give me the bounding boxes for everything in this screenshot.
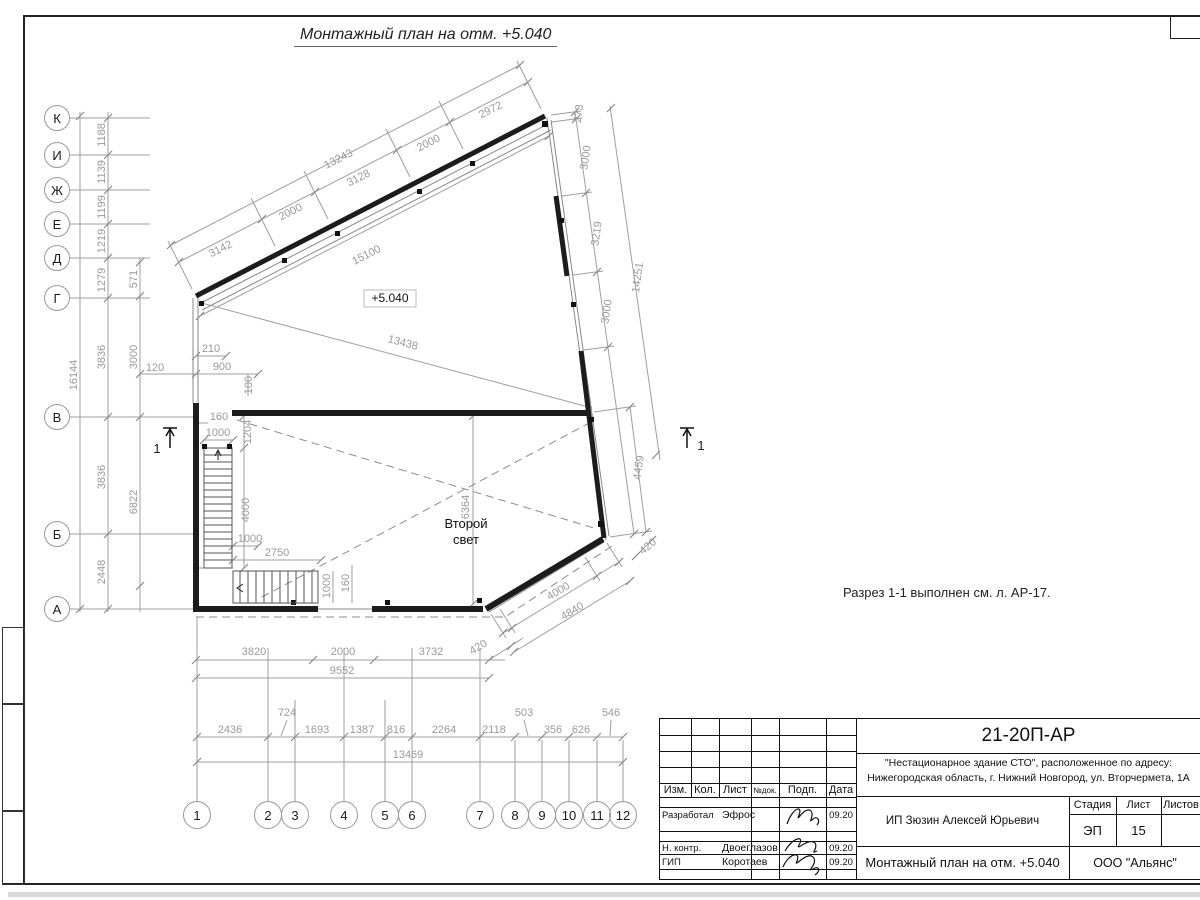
dim-label: 6364: [460, 495, 472, 519]
dim-label: 546: [602, 707, 620, 719]
row-axis-label: К: [53, 111, 61, 126]
tb-col-izm: Изм.: [660, 783, 691, 797]
dim-label: 1000: [238, 533, 262, 545]
dim-label: 3000: [578, 145, 593, 171]
dim-label: 420: [467, 638, 489, 658]
dim-label: 571: [128, 270, 140, 288]
tb-customer: ИП Зюзин Алексей Юрьевич: [856, 796, 1069, 846]
dim-label: 273: [572, 104, 586, 124]
dim-label: 3820: [242, 646, 266, 658]
tb-name-ncontrol: Двоеглазов: [722, 842, 784, 854]
tb-company: ООО "Альянс": [1069, 846, 1200, 879]
tb-sheets-label: Листов: [1161, 796, 1200, 814]
col-axis-bubbles: 1 2 3 4 5 6 7 8 9 10 11 12: [184, 802, 637, 829]
row-axis-label: Д: [53, 251, 62, 266]
dim-label: 4000: [240, 498, 252, 522]
row-axis-label: И: [52, 148, 61, 163]
dim-label: 13438: [386, 333, 419, 353]
col-axis-label: 4: [340, 808, 347, 823]
signatures: [779, 799, 826, 877]
dim-label: 120: [146, 362, 164, 374]
row-axis-label: А: [53, 602, 62, 617]
col-axis-label: 11: [590, 808, 604, 823]
dim-label: 420: [637, 536, 659, 557]
tb-line: [856, 753, 1200, 754]
tb-role-gip: ГИП: [662, 857, 722, 868]
tb-sheet-value: 15: [1116, 814, 1161, 846]
row-axis-label: Г: [53, 291, 60, 306]
dim-label: 3000: [599, 299, 614, 325]
dim-label: 900: [213, 361, 231, 373]
tb-stage-value: ЭП: [1069, 814, 1116, 846]
col-axis-label: 3: [291, 808, 298, 823]
dim-label: 2000: [277, 201, 304, 223]
dim-label: 503: [515, 707, 533, 719]
dim-label: 1387: [350, 724, 374, 736]
dim-label: 4840: [559, 600, 586, 623]
dim-label: 2448: [96, 560, 108, 584]
dim-label: 160: [340, 574, 352, 592]
section-label-right: 1: [697, 438, 704, 453]
tb-line: [660, 767, 856, 768]
tb-line: [660, 869, 856, 870]
col-axis-label: 1: [193, 808, 200, 823]
tb-drawing-name: Монтажный план на отм. +5.040: [856, 846, 1069, 879]
tb-name-gip: Коротаев: [722, 856, 784, 868]
dim-label: 724: [278, 707, 296, 719]
dim-label: 2264: [432, 724, 456, 736]
signature-developer: [787, 809, 819, 825]
dim-label: 1219: [96, 229, 108, 253]
dim-label: 3128: [345, 167, 372, 189]
dim-label: 1693: [305, 724, 329, 736]
dim-label: 13469: [393, 749, 424, 761]
dim-label: 1204: [242, 420, 254, 444]
dim-label: 9552: [330, 665, 354, 677]
dim-label: 1000: [321, 574, 333, 598]
tb-name-developer: Эфрос: [722, 809, 780, 821]
col-axis-label: 12: [616, 808, 630, 823]
dim-label: 1139: [96, 160, 108, 184]
dim-label: 100: [243, 376, 255, 394]
title-block: Изм. Кол. Лист №док. Подп. Дата Разработ…: [659, 718, 1200, 880]
dim-label: 356: [544, 724, 562, 736]
tb-date-developer: 09.20: [826, 809, 856, 821]
dim-label: 2118: [482, 724, 506, 736]
col-axis-label: 8: [511, 808, 518, 823]
dim-label: 3142: [207, 238, 234, 260]
tb-line: [660, 735, 856, 736]
room-label-line2: свет: [453, 532, 479, 547]
tb-object-line1: "Нестационарное здание СТО", расположенн…: [885, 757, 1172, 769]
dim-label: 2750: [265, 547, 289, 559]
dim-label: 4459: [631, 455, 646, 481]
row-axis-label: Б: [53, 527, 62, 542]
dim-label: 16144: [68, 360, 80, 391]
dim-label: 816: [387, 724, 405, 736]
tb-line: [660, 831, 856, 832]
dim-label: 2972: [477, 99, 504, 121]
tb-date-gip: 09.20: [826, 856, 856, 868]
col-axis-label: 7: [476, 808, 483, 823]
tb-col-data: Дата: [826, 783, 856, 797]
tb-line: [660, 797, 856, 798]
dim-label: 3732: [419, 646, 443, 658]
row-axis-label: В: [53, 410, 62, 425]
dim-label: 1279: [96, 268, 108, 292]
tb-date-ncontrol: 09.20: [826, 842, 856, 854]
dim-label: 626: [572, 724, 590, 736]
dim-label: 210: [202, 343, 220, 355]
tb-role-ncontrol: Н. контр.: [662, 843, 722, 854]
level-mark: +5.040: [371, 291, 408, 305]
tb-line: [826, 719, 827, 879]
col-axis-label: 2: [264, 808, 271, 823]
row-axis-label: Ж: [51, 183, 63, 198]
dim-label: 15100: [350, 243, 383, 268]
dim-label: 3000: [128, 345, 140, 369]
dim-label: 1000: [206, 427, 230, 439]
tb-stage-label: Стадия: [1069, 796, 1116, 814]
col-axis-label: 5: [381, 808, 388, 823]
dim-label: 160: [210, 411, 228, 423]
col-axis-label: 10: [562, 808, 576, 823]
tb-object-line2: Нижегородская область, г. Нижний Новгоро…: [867, 772, 1190, 784]
tb-line: [660, 807, 856, 808]
dim-label: 2000: [415, 132, 442, 154]
tb-doc-code: 21-20П-АР: [856, 719, 1200, 753]
dim-label: 2436: [218, 724, 242, 736]
tb-col-list: Лист: [719, 783, 751, 797]
staircase: [202, 444, 318, 603]
tb-role-developer: Разработал: [662, 810, 722, 821]
dim-label: 2000: [331, 646, 355, 658]
dim-label: 1199: [96, 195, 108, 219]
dim-label: 1188: [96, 123, 108, 147]
row-axis-bubbles: К И Ж Е Д Г В Б А: [45, 106, 70, 622]
dim-label: 13243: [322, 147, 355, 172]
dim-label: 6822: [128, 490, 140, 514]
col-axis-label: 9: [538, 808, 545, 823]
dim-label: 3836: [96, 345, 108, 369]
tb-col-ndok: №док.: [751, 783, 779, 797]
section-label-left: 1: [153, 441, 160, 456]
col-axis-label: 6: [408, 808, 415, 823]
dim-label: 3836: [96, 465, 108, 489]
dim-label: 3219: [589, 221, 604, 247]
tb-col-podp: Подп.: [779, 783, 826, 797]
tb-line: [660, 854, 856, 855]
drawing-sheet: Монтажный план на отм. +5.040 Разрез 1-1…: [0, 0, 1200, 900]
tb-line: [751, 719, 752, 879]
tb-col-kol: Кол.: [691, 783, 719, 797]
void-dashed-lines: [196, 420, 612, 617]
tb-line: [660, 751, 856, 752]
tb-sheet-label: Лист: [1116, 796, 1161, 814]
row-axis-label: Е: [53, 217, 62, 232]
signature-gip: [783, 839, 819, 875]
